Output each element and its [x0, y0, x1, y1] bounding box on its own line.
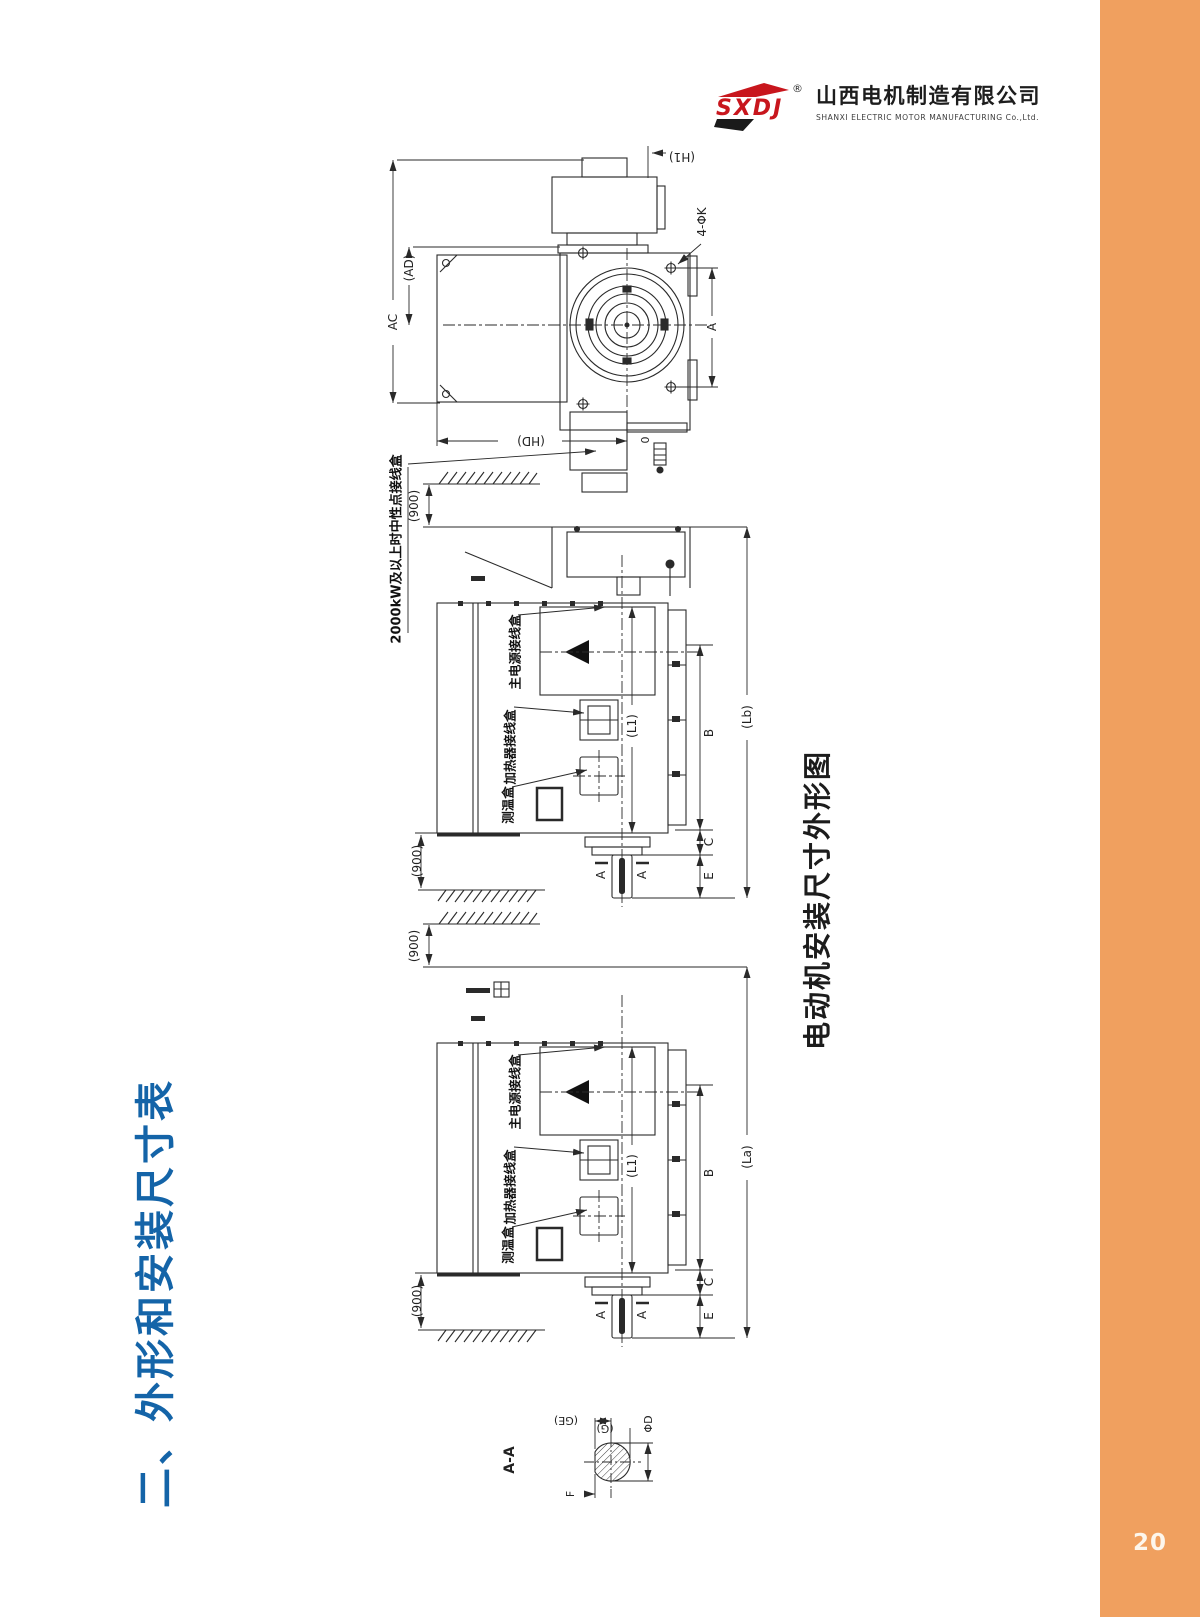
nameplate-outline	[537, 788, 562, 820]
dim-label-e: E	[702, 872, 716, 880]
dim-label-zero: 0	[639, 437, 652, 444]
technical-drawings: AC (AD) (H1) 4-ΦK A (HD) 0	[0, 0, 1200, 1617]
dim-label-g: (G)	[596, 1422, 613, 1435]
dim-label-l1: (L1)	[625, 714, 639, 738]
drawing-side-view-shared: (900) (900) 主电源接线盒 加热器接线盒 测温盒 A A (L1) B…	[407, 472, 747, 907]
dim-label-900-bottom: (900)	[410, 845, 424, 877]
dim-label-ge: (GE)	[554, 1414, 578, 1427]
dim-label-a: A	[705, 322, 719, 331]
drawing-side-view-clone	[407, 912, 747, 1347]
dim-label-la: (La)	[740, 1145, 754, 1168]
dim-label-c: C	[702, 838, 716, 846]
note-neutral-terminal-box: 2000kW及以上时中性点接线盒	[389, 453, 405, 643]
section-aa-title: A-A	[502, 1446, 518, 1474]
label-main-terminal-box: 主电源接线盒	[507, 614, 522, 690]
dim-label-h1: (H1)	[669, 150, 695, 164]
main-terminal-box-outline	[540, 607, 655, 695]
dim-label-hd: (HD)	[517, 434, 545, 448]
label-temperature-box: 测温盒	[500, 786, 515, 824]
catalog-page: 20 SXDJ ® 山西电机制造有限公司 SHANXI ELECTRIC MOT…	[0, 0, 1200, 1617]
dim-label-4-phi-k: 4-ΦK	[695, 206, 709, 236]
dim-label-b: B	[702, 729, 716, 737]
drawing-end-view: AC (AD) (H1) 4-ΦK A (HD) 0	[386, 146, 719, 492]
section-cut-mark-a2: A	[635, 870, 649, 879]
dim-label-f: F	[564, 1491, 577, 1497]
dim-label-lb: (Lb)	[740, 705, 754, 729]
weld-mark-icon	[466, 988, 490, 993]
section-aa: A-A (GE) (G) ΦD F	[502, 1414, 655, 1498]
dim-label-ad: (AD)	[402, 255, 416, 282]
dim-label-900-top: (900)	[407, 490, 421, 522]
label-heater-terminal-box: 加热器接线盒	[502, 709, 517, 786]
dim-label-ac: AC	[386, 314, 400, 330]
dim-label-phi-d: ΦD	[642, 1415, 655, 1432]
drawing2-extras: (Lb) 2000kW及以上时中性点接线盒	[389, 451, 755, 729]
section-cut-mark-a1: A	[594, 870, 608, 879]
